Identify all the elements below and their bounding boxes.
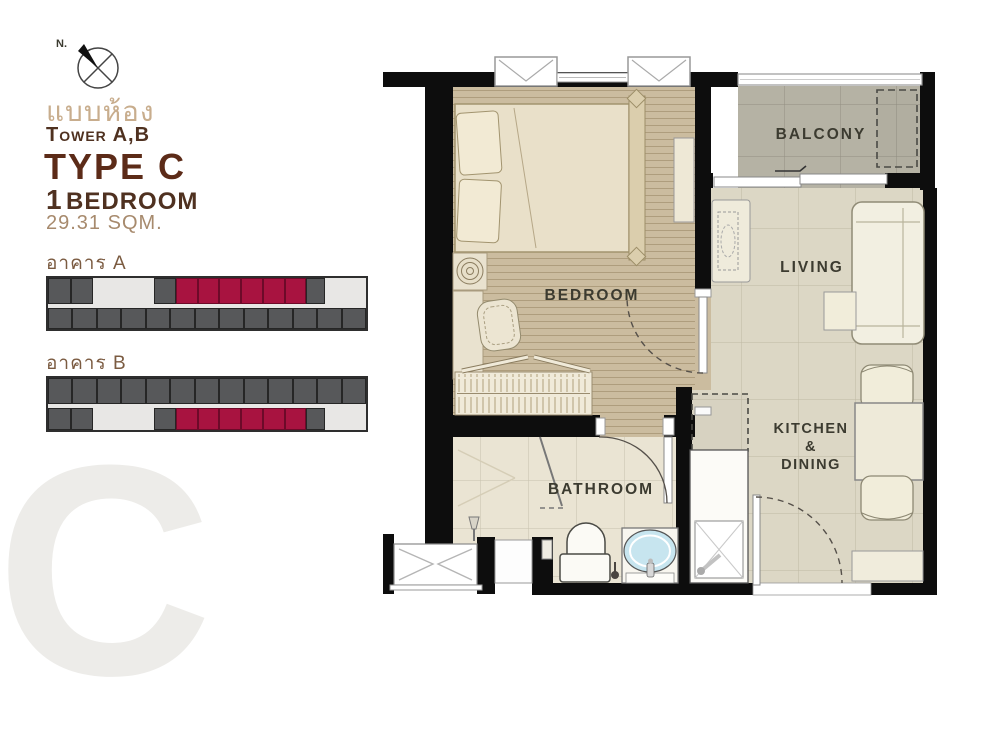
unit-area: 29.31 SQM. (46, 212, 163, 235)
shoe-bench (852, 551, 923, 581)
casement-window-icon (495, 57, 690, 86)
unit-other (195, 378, 219, 404)
unit-type-c (198, 278, 220, 304)
unit-other (268, 308, 292, 329)
lamp-table (453, 253, 487, 290)
unit-type-c (263, 408, 285, 430)
unit-type-c (241, 408, 263, 430)
unit-other (146, 308, 170, 329)
fridge-space (692, 394, 748, 451)
unit-other (306, 408, 325, 430)
balcony-label: BALCONY (776, 126, 867, 143)
ac-unit-space (877, 90, 917, 167)
kitchen-counter (690, 450, 748, 583)
bathroom-window (390, 544, 482, 590)
kitchen-label-3: DINING (781, 457, 841, 473)
unit-other (244, 308, 268, 329)
bedroom-count-number: 1 (46, 184, 62, 215)
type-name: TYPE C (44, 146, 186, 188)
kitchen-label-1: KITCHEN (774, 421, 849, 437)
bed (455, 89, 646, 265)
unit-type-c (241, 278, 263, 304)
balcony-railing (738, 74, 922, 85)
north-label: N. (56, 38, 67, 50)
unit-other (170, 308, 194, 329)
unit-other (342, 378, 366, 404)
compass-icon: N. (56, 38, 118, 88)
unit-other (293, 378, 317, 404)
strip-gap (325, 278, 366, 304)
type-watermark: C (0, 420, 213, 720)
unit-other (72, 308, 96, 329)
unit-other (71, 278, 94, 304)
unit-other (72, 378, 96, 404)
bedside-shelf (674, 138, 694, 222)
unit-other (342, 308, 366, 329)
unit-type-c (285, 278, 307, 304)
unit-other (317, 378, 341, 404)
strip-gap (325, 408, 366, 430)
unit-other (48, 278, 71, 304)
unit-other (219, 378, 243, 404)
utility-shaft (495, 540, 532, 583)
living-label: LIVING (780, 259, 844, 276)
bathroom-label: BATHROOM (548, 481, 654, 498)
building-b-label: อาคาร B (46, 348, 127, 378)
bedroom-label: BEDROOM (545, 287, 640, 304)
unit-other (154, 278, 176, 304)
unit-other (97, 308, 121, 329)
unit-type-c (176, 278, 198, 304)
strip-gap (93, 278, 154, 304)
dining-set (855, 365, 923, 520)
unit-other (306, 278, 325, 304)
unit-other (121, 378, 145, 404)
unit-other (170, 378, 194, 404)
side-table (824, 292, 856, 330)
sofa (852, 202, 924, 344)
building-a-strip (46, 276, 368, 331)
bathroom-sink (622, 528, 678, 583)
unit-type-c (285, 408, 307, 430)
unit-other (244, 378, 268, 404)
unit-other (97, 378, 121, 404)
bedroom-count-word: BEDROOM (66, 188, 198, 215)
unit-other (195, 308, 219, 329)
kitchen-label-2: & (805, 439, 817, 455)
unit-other (268, 378, 292, 404)
tv-console (712, 200, 750, 282)
unit-other (121, 308, 145, 329)
unit-other (317, 308, 341, 329)
unit-type-c (219, 408, 241, 430)
unit-other (48, 378, 72, 404)
unit-other (293, 308, 317, 329)
unit-type-c (219, 278, 241, 304)
unit-other (219, 308, 243, 329)
unit-type-c (263, 278, 285, 304)
tower-label: Tower A,B (46, 124, 150, 147)
unit-other (146, 378, 170, 404)
building-a-label: อาคาร A (46, 248, 127, 278)
unit-other (48, 308, 72, 329)
